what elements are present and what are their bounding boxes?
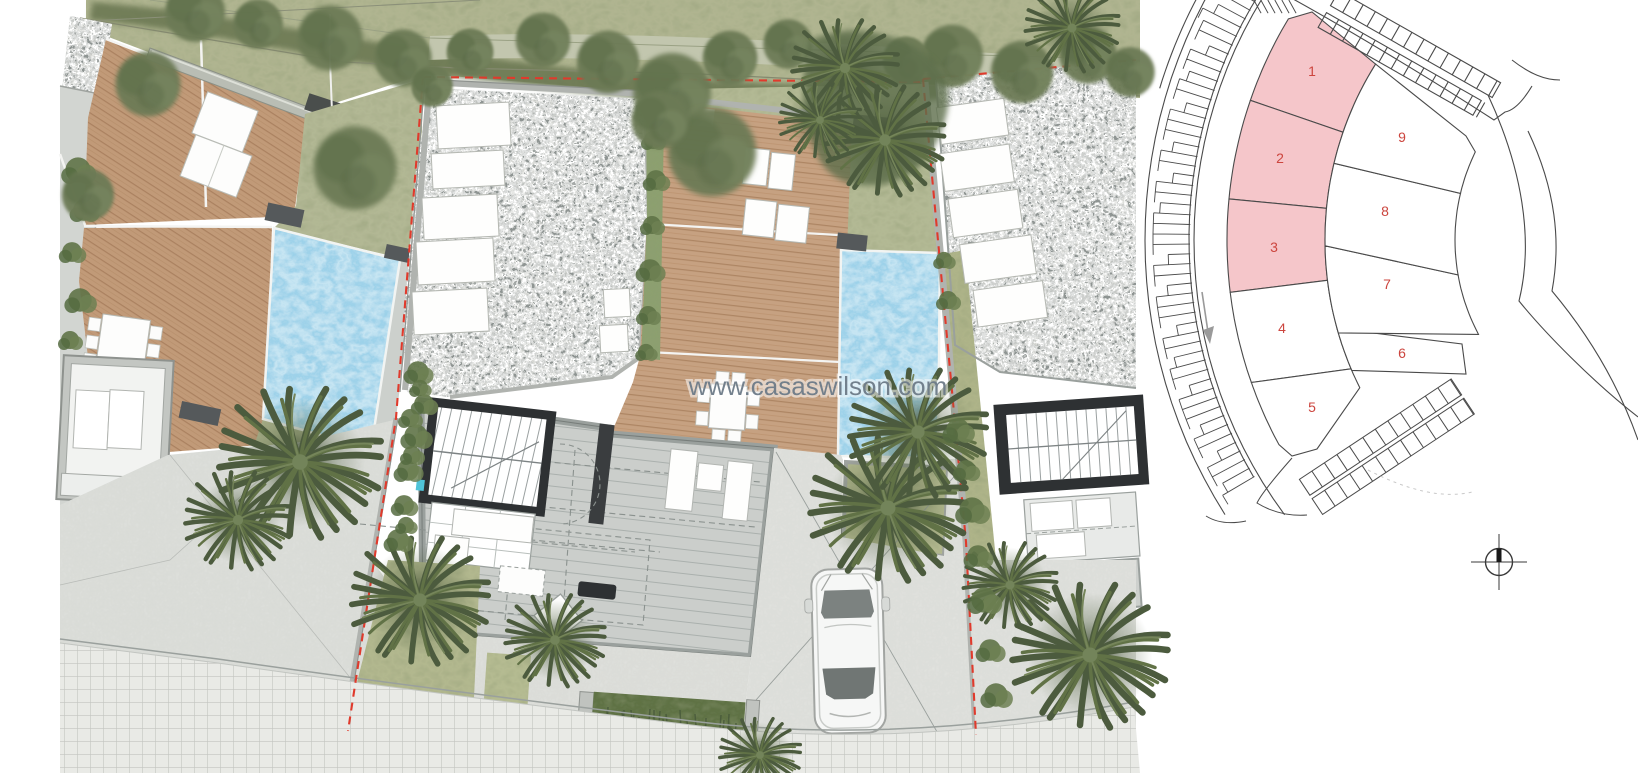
svg-text:6: 6 — [1398, 345, 1406, 361]
svg-text:7: 7 — [1383, 276, 1391, 292]
svg-text:1: 1 — [1308, 63, 1316, 79]
svg-text:9: 9 — [1398, 129, 1406, 145]
svg-text:8: 8 — [1381, 203, 1389, 219]
svg-text:4: 4 — [1278, 320, 1286, 336]
svg-text:3: 3 — [1270, 239, 1278, 255]
svg-text:2: 2 — [1276, 150, 1284, 166]
svg-text:www.casaswilson.com: www.casaswilson.com — [688, 371, 948, 401]
svg-text:5: 5 — [1308, 399, 1316, 415]
